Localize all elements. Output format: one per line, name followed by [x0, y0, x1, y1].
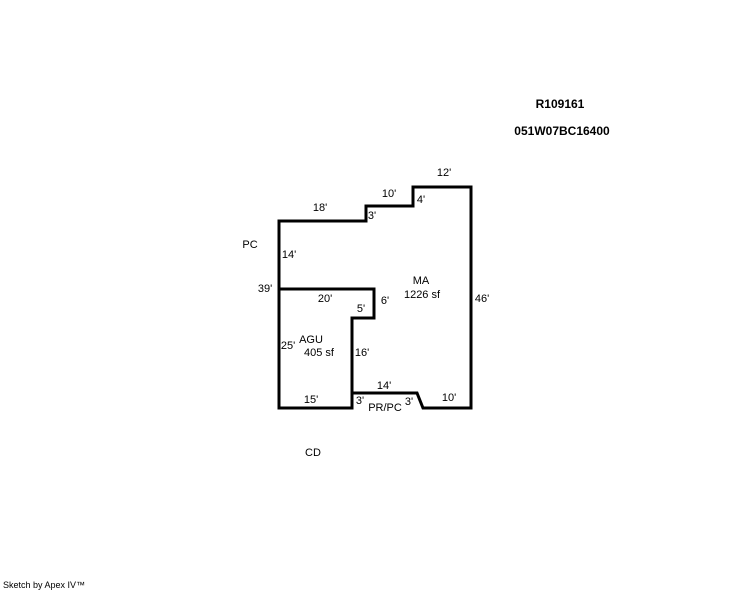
dim-bottom-14: 14'	[377, 380, 391, 392]
dim-mid-20: 20'	[318, 293, 332, 305]
dim-left-39: 39'	[258, 283, 272, 295]
dim-top-12: 12'	[437, 167, 451, 179]
dim-bottom-3-right: 3'	[405, 396, 413, 408]
sketch-canvas	[0, 0, 744, 595]
dim-top-3: 3'	[368, 210, 376, 222]
dim-left-25: 25'	[281, 340, 295, 352]
area-code-agu: AGU	[299, 334, 323, 346]
apex-branding: Sketch by Apex IV™	[3, 580, 85, 590]
zone-label-cd: CD	[305, 447, 321, 459]
dim-mid-16: 16'	[355, 347, 369, 359]
record-id: R109161	[536, 97, 585, 111]
sketch-page: R109161 051W07BC16400 12' 10' 4' 18' 3' …	[0, 0, 744, 595]
dim-mid-6: 6'	[381, 295, 389, 307]
dim-mid-5: 5'	[357, 303, 365, 315]
dim-top-18: 18'	[313, 202, 327, 214]
dim-right-46: 46'	[475, 293, 489, 305]
area-size-ma: 1226 sf	[404, 289, 440, 301]
zone-label-prpc: PR/PC	[368, 402, 402, 414]
parcel-id: 051W07BC16400	[514, 124, 609, 138]
dim-top-10: 10'	[382, 188, 396, 200]
dim-bottom-10: 10'	[442, 392, 456, 404]
area-size-agu: 405 sf	[304, 347, 334, 359]
dim-left-14: 14'	[282, 249, 296, 261]
dim-bottom-3-left: 3'	[356, 395, 364, 407]
area-code-ma: MA	[413, 275, 430, 287]
zone-label-pc: PC	[242, 239, 257, 251]
dim-bottom-15: 15'	[304, 394, 318, 406]
dim-top-4: 4'	[417, 194, 425, 206]
